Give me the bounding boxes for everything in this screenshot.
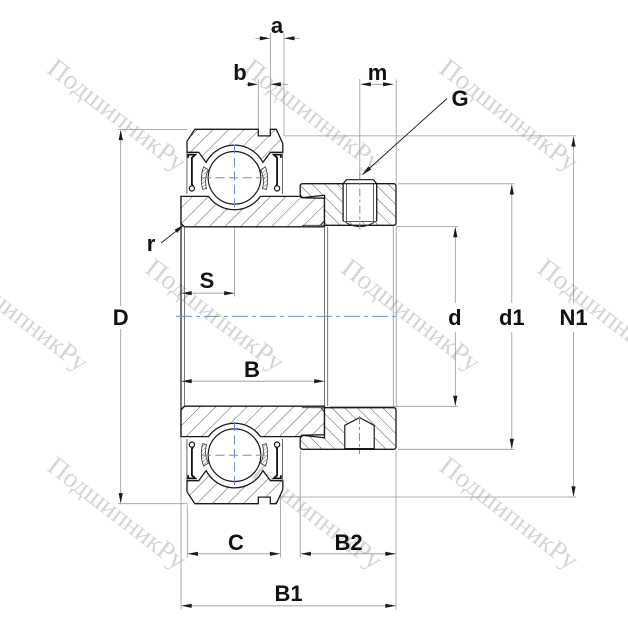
svg-text:B: B (244, 357, 260, 382)
svg-text:a: a (271, 13, 284, 38)
svg-text:r: r (147, 231, 156, 256)
svg-text:d: d (448, 305, 461, 330)
svg-text:b: b (233, 60, 246, 85)
svg-text:B1: B1 (274, 581, 302, 606)
svg-text:m: m (368, 60, 388, 85)
svg-text:G: G (451, 86, 468, 111)
svg-text:C: C (228, 530, 244, 555)
svg-text:N1: N1 (559, 305, 587, 330)
svg-text:B2: B2 (334, 530, 362, 555)
svg-text:d1: d1 (499, 305, 525, 330)
svg-text:D: D (113, 305, 129, 330)
svg-text:S: S (200, 268, 215, 293)
